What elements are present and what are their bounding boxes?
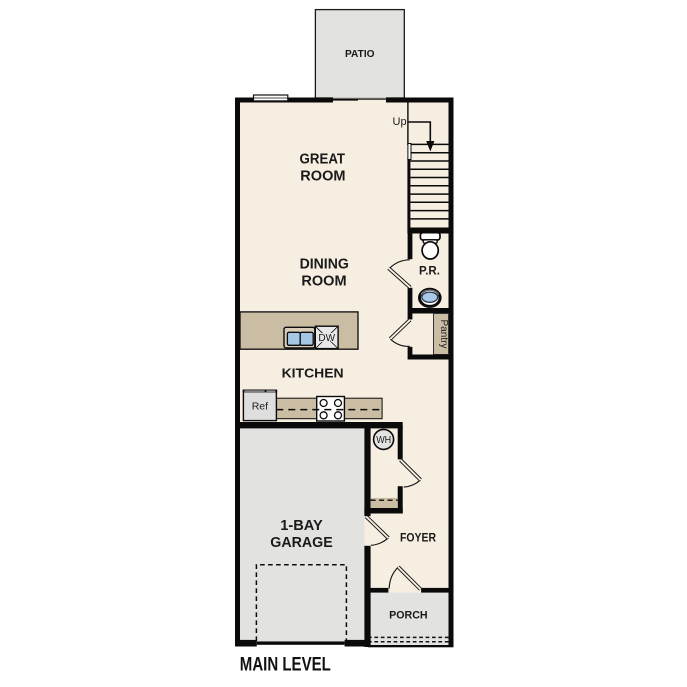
- svg-text:MAIN LEVEL: MAIN LEVEL: [240, 655, 331, 676]
- svg-text:WH: WH: [376, 435, 391, 446]
- svg-text:FOYER: FOYER: [400, 533, 437, 545]
- svg-text:Ref: Ref: [252, 401, 268, 413]
- svg-text:KITCHEN: KITCHEN: [282, 366, 344, 381]
- svg-text:PORCH: PORCH: [389, 610, 428, 622]
- svg-text:DINING: DINING: [300, 257, 349, 273]
- svg-text:Up: Up: [393, 116, 407, 128]
- svg-text:GREAT: GREAT: [300, 152, 346, 168]
- svg-text:ROOM: ROOM: [301, 274, 346, 290]
- svg-text:ROOM: ROOM: [300, 169, 345, 185]
- svg-text:PATIO: PATIO: [345, 49, 375, 60]
- svg-text:DW: DW: [318, 333, 335, 344]
- svg-text:Pantry: Pantry: [438, 320, 449, 349]
- svg-text:GARAGE: GARAGE: [270, 535, 333, 551]
- svg-text:P.R.: P.R.: [419, 266, 440, 278]
- svg-text:1-BAY: 1-BAY: [280, 518, 323, 534]
